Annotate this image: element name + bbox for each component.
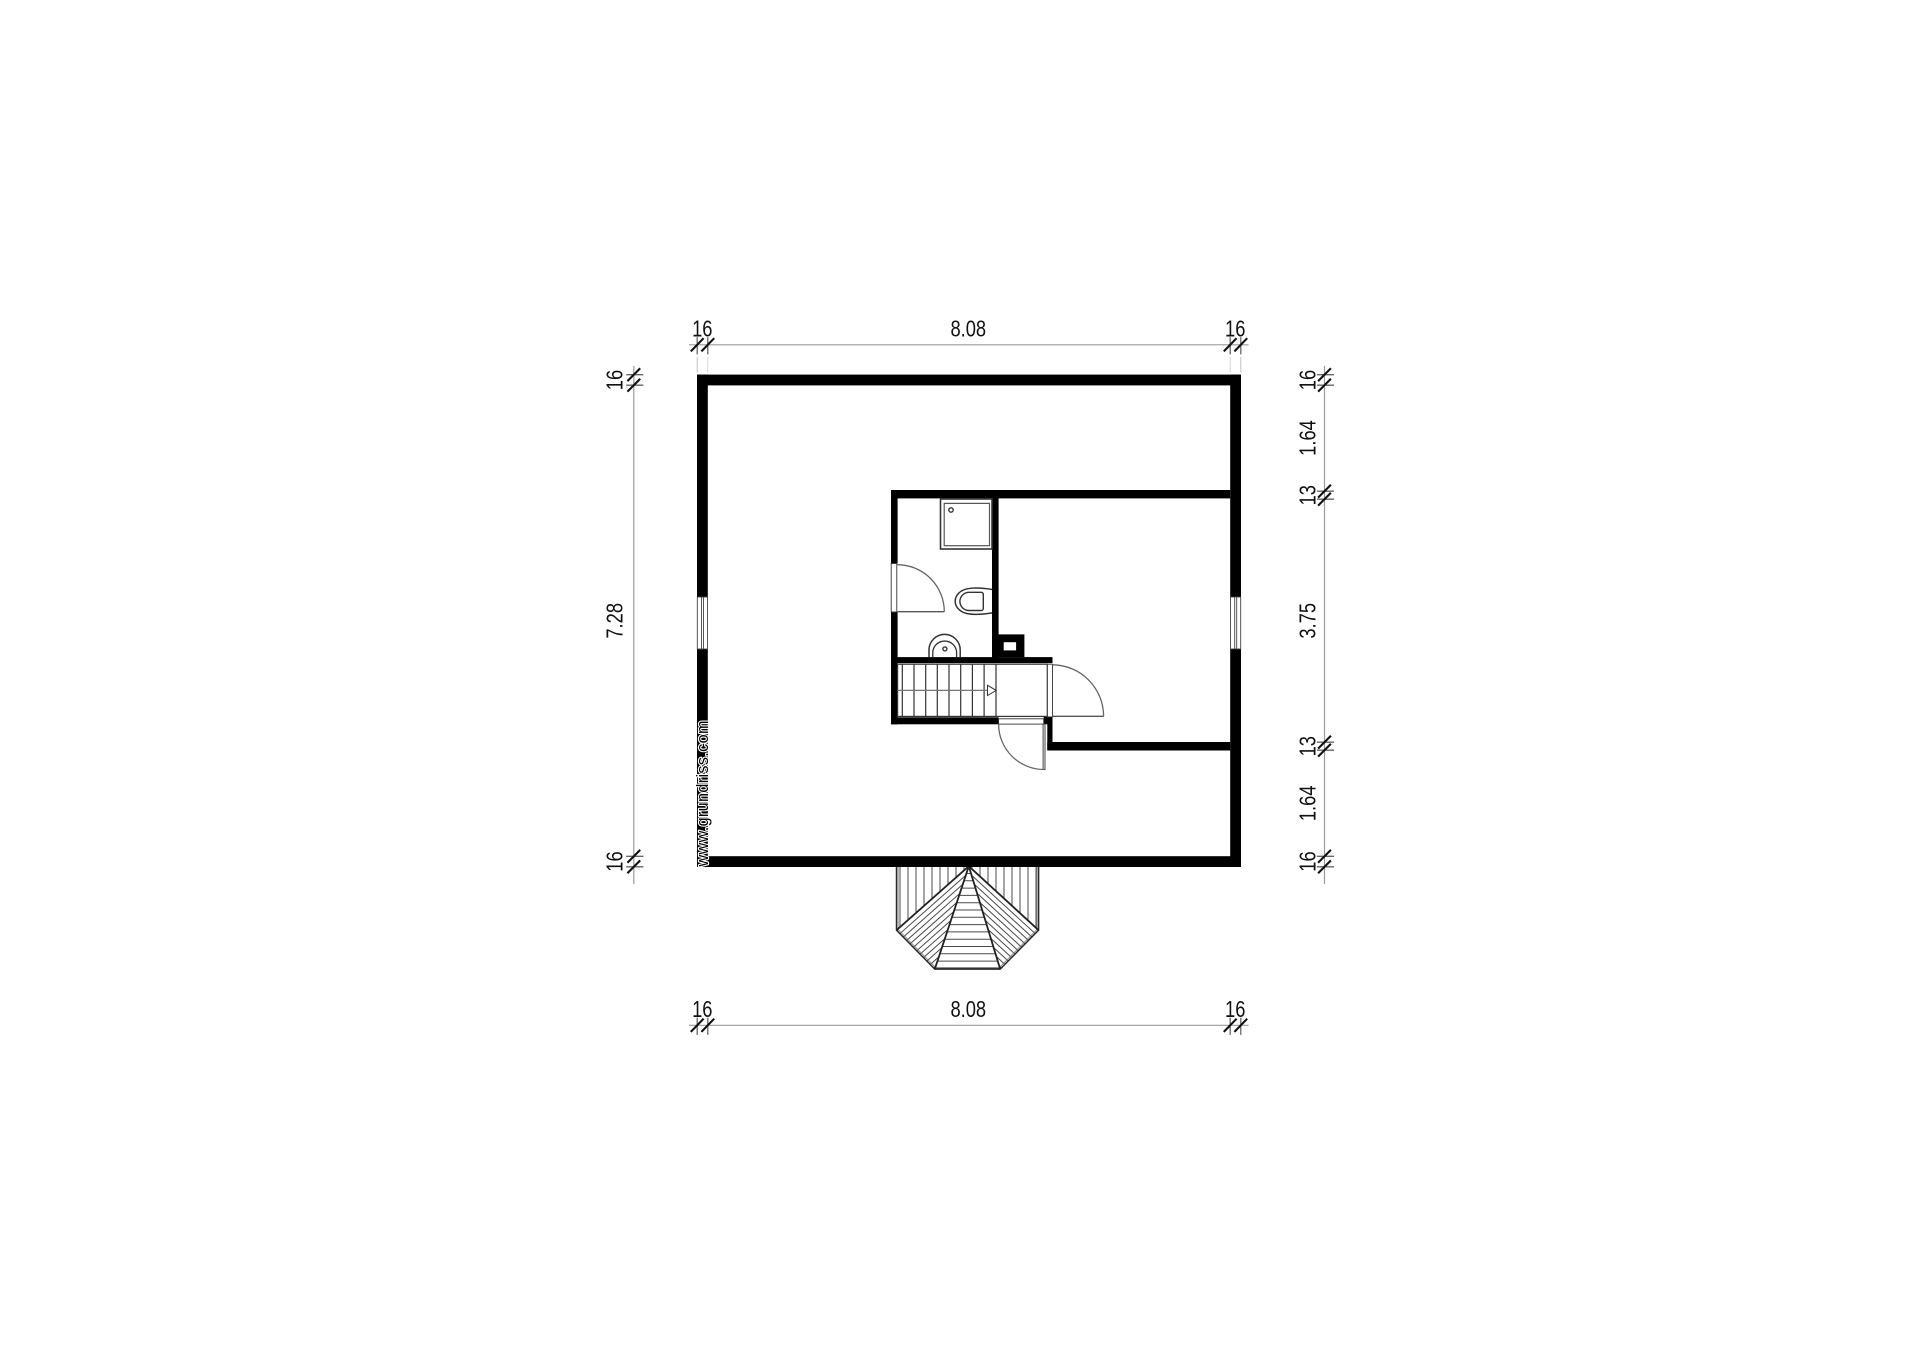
svg-text:16: 16 [1225,997,1245,1023]
svg-text:16: 16 [692,997,712,1023]
svg-text:16: 16 [692,316,712,342]
svg-text:1.64: 1.64 [1295,785,1321,821]
svg-text:8.08: 8.08 [950,316,986,342]
svg-text:8.08: 8.08 [950,997,986,1023]
svg-text:7.28: 7.28 [602,603,628,639]
svg-text:13: 13 [1295,485,1321,505]
svg-text:3.75: 3.75 [1295,603,1321,639]
svg-text:16: 16 [602,851,628,871]
svg-text:16: 16 [602,370,628,390]
svg-text:16: 16 [1295,851,1321,871]
svg-text:16: 16 [1295,370,1321,390]
svg-text:www.grundriss.com: www.grundriss.com [694,720,712,867]
svg-text:13: 13 [1295,736,1321,756]
svg-text:1.64: 1.64 [1295,420,1321,456]
svg-text:16: 16 [1225,316,1245,342]
